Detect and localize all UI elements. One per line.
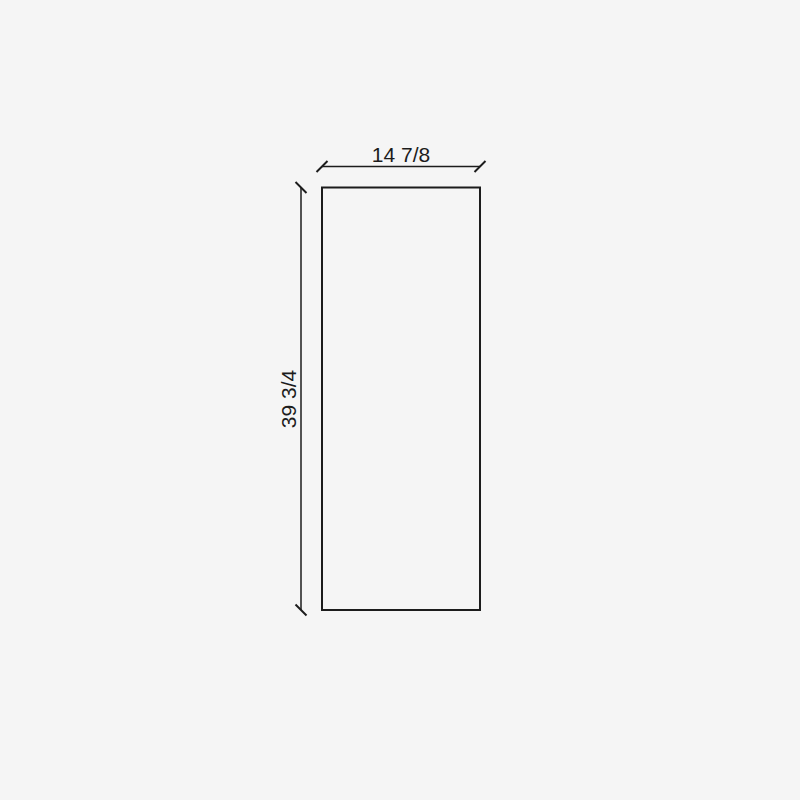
svg-text:39 3/4: 39 3/4 [277,369,300,428]
svg-text:14 7/8: 14 7/8 [372,143,430,166]
